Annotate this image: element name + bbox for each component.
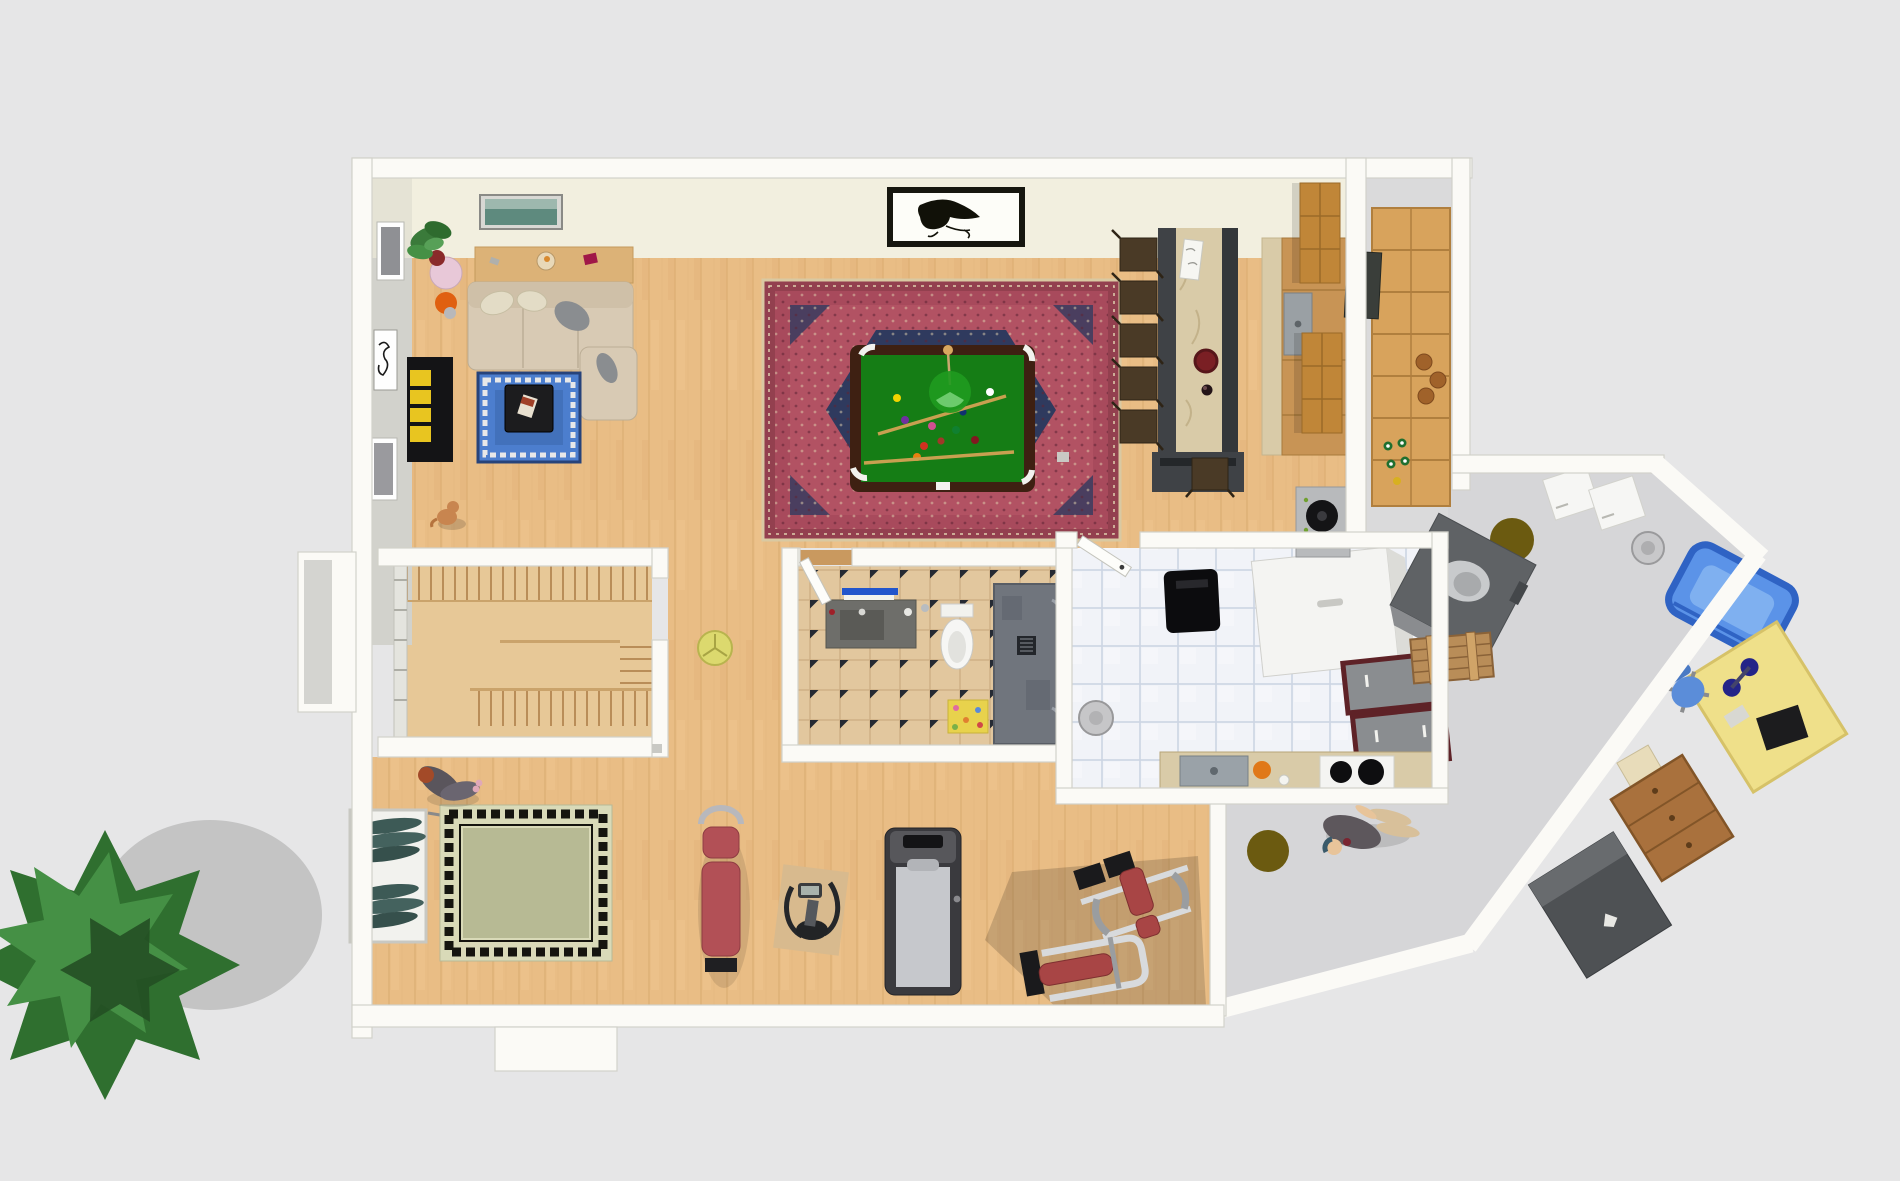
kitchen-counter-top — [1262, 238, 1282, 455]
bar-counter[interactable] — [1152, 228, 1244, 492]
stair-south-wall — [378, 737, 668, 757]
lower-flight-treads — [470, 690, 652, 726]
laundry-north-wall-a — [1056, 532, 1077, 548]
clay-pot-2 — [1430, 372, 1446, 388]
orange-bowl — [1253, 761, 1271, 779]
toilet-brush — [921, 604, 929, 612]
wine-bottle[interactable] — [1202, 385, 1213, 396]
west-bump-face — [304, 560, 332, 704]
shower-stall[interactable] — [994, 584, 1058, 744]
floor-plan-stage — [0, 0, 1900, 1181]
wall-vent-2 — [652, 744, 662, 753]
utility-north-wall — [1452, 455, 1664, 473]
bath-west-wall — [782, 548, 798, 762]
gym-rug-field — [463, 828, 589, 938]
stretch-foot-1 — [473, 786, 480, 793]
laundry-south-wall — [1056, 788, 1448, 804]
grill-vent — [1176, 579, 1208, 589]
elliptical-screen — [801, 886, 819, 895]
picture-3-image — [374, 443, 393, 495]
wall-vent-1 — [1057, 452, 1069, 462]
bath-north-wall-b — [852, 548, 1072, 566]
bench-main-pad — [702, 862, 740, 956]
laundry-east-wall — [1432, 532, 1448, 792]
bar-menu[interactable] — [1180, 239, 1204, 280]
blue-towel — [842, 588, 898, 595]
stretch-head — [418, 767, 434, 783]
pantry-shelving[interactable] — [1372, 208, 1450, 506]
laundry-west-wall — [1056, 532, 1072, 792]
burner-2 — [1358, 759, 1384, 785]
person-scarf — [1343, 838, 1351, 846]
stair-north-wall — [378, 548, 668, 566]
floor-basin-center — [1089, 711, 1103, 725]
white-towel — [844, 595, 894, 600]
vanity-faucet — [859, 609, 866, 616]
treadmill-console — [903, 835, 943, 848]
white-cup — [1279, 775, 1289, 785]
north-wall — [352, 158, 1472, 178]
clay-pot-1 — [1416, 354, 1432, 370]
toilet-tank — [941, 604, 973, 617]
clay-pot-3 — [1418, 388, 1434, 404]
vanity-cup — [904, 608, 912, 616]
bench-head-pad — [703, 827, 739, 858]
counter-faucet — [1210, 767, 1218, 775]
treadmill[interactable] — [885, 828, 961, 995]
east-main-wall — [1346, 158, 1366, 548]
stair-east-wall-a — [652, 548, 668, 578]
lamp-base — [444, 307, 456, 319]
burner-1 — [1330, 761, 1352, 783]
pocket-bottom — [936, 482, 950, 490]
black-grill[interactable] — [1163, 569, 1220, 634]
bath-south-wall — [782, 745, 1072, 762]
wood-crate[interactable] — [1410, 631, 1494, 686]
treadmill-grip — [907, 859, 939, 871]
decor-fruit — [544, 256, 550, 262]
dog-head — [447, 501, 459, 513]
gym-east-wall — [1210, 792, 1226, 1016]
console-table[interactable] — [475, 247, 633, 283]
elliptical-trainer[interactable] — [773, 864, 849, 955]
landscape-picture-sky — [485, 199, 557, 209]
bench-foot — [705, 958, 737, 972]
soap-bottle — [829, 609, 835, 615]
floor-plan-canvas — [0, 0, 1900, 1181]
picture-1-image — [381, 227, 400, 275]
gym-south-wall — [352, 1005, 1224, 1027]
serving-tray[interactable] — [1195, 350, 1217, 372]
kitchen-faucet — [1295, 321, 1302, 328]
pool-table[interactable] — [850, 345, 1035, 492]
bar-front-rail — [1158, 228, 1176, 456]
south-step — [495, 1027, 617, 1071]
billiard-area — [763, 280, 1120, 540]
bar-back-rail — [1222, 228, 1238, 456]
kitchenette-counter[interactable] — [1160, 752, 1448, 790]
blue-rug-area[interactable] — [478, 373, 580, 462]
turn-steps — [620, 640, 652, 690]
landing-edge — [500, 640, 620, 643]
stair-east-wall-b — [652, 640, 668, 757]
stretch-foot-2 — [476, 780, 483, 787]
upper-flight-treads — [394, 566, 652, 600]
tv-cabinet[interactable] — [407, 357, 453, 462]
greek-key-rug[interactable] — [440, 805, 612, 961]
treadmill-belt — [896, 867, 950, 987]
stair-railing — [394, 566, 407, 737]
olive-disc-2[interactable] — [1247, 830, 1289, 872]
laundry-north-wall-b — [1140, 532, 1448, 548]
pantry-east-wall — [1452, 158, 1470, 490]
toilet-seat — [948, 631, 966, 663]
